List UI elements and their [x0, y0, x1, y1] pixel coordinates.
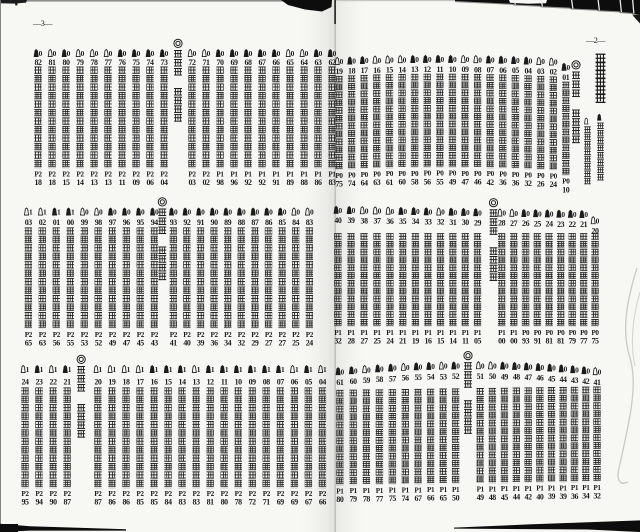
svg-text:0: 0 — [174, 208, 178, 217]
svg-text:02: 02 — [550, 68, 558, 77]
svg-text:13: 13 — [104, 178, 112, 187]
svg-text:1: 1 — [54, 365, 58, 374]
svg-text:14: 14 — [179, 378, 187, 387]
svg-text:0: 0 — [573, 210, 577, 219]
svg-text:47: 47 — [123, 339, 131, 348]
svg-text:50: 50 — [452, 493, 460, 502]
svg-text:00: 00 — [510, 336, 518, 345]
svg-text:1: 1 — [43, 208, 47, 217]
svg-text:08: 08 — [263, 378, 271, 387]
svg-text:72: 72 — [249, 498, 257, 507]
svg-text:87: 87 — [94, 498, 102, 507]
svg-text:39: 39 — [559, 492, 567, 501]
svg-text:0: 0 — [263, 49, 267, 58]
svg-text:0: 0 — [596, 216, 600, 225]
svg-text:36: 36 — [386, 217, 394, 226]
svg-text:87: 87 — [64, 498, 72, 507]
svg-text:74: 74 — [348, 179, 356, 188]
svg-text:23: 23 — [35, 378, 43, 387]
svg-text:52: 52 — [452, 372, 460, 381]
svg-text:26: 26 — [522, 219, 530, 228]
svg-text:40: 40 — [334, 216, 342, 225]
svg-text:09: 09 — [132, 178, 140, 187]
svg-text:28: 28 — [347, 336, 355, 345]
svg-text:66: 66 — [319, 498, 327, 507]
svg-text:48: 48 — [489, 493, 497, 502]
svg-text:27: 27 — [510, 219, 518, 228]
svg-text:48: 48 — [513, 373, 521, 382]
svg-text:0: 0 — [283, 208, 287, 217]
svg-text:0: 0 — [429, 207, 433, 216]
svg-text:1: 1 — [113, 365, 117, 374]
svg-text:47: 47 — [525, 373, 533, 382]
svg-text:77: 77 — [376, 494, 384, 503]
svg-text:0: 0 — [228, 208, 232, 217]
svg-text:24: 24 — [550, 180, 558, 189]
svg-text:94: 94 — [35, 498, 43, 507]
svg-text:71: 71 — [202, 58, 210, 67]
svg-text:0: 0 — [514, 209, 518, 218]
svg-text:33: 33 — [424, 217, 432, 226]
svg-text:01: 01 — [53, 218, 61, 227]
svg-text:57: 57 — [389, 374, 397, 383]
svg-text:0: 0 — [310, 208, 314, 217]
svg-text:0: 0 — [550, 210, 554, 219]
svg-text:42: 42 — [487, 178, 495, 187]
svg-text:1: 1 — [253, 365, 257, 374]
svg-text:49: 49 — [449, 177, 457, 186]
svg-text:22: 22 — [50, 378, 58, 387]
svg-text:0: 0 — [367, 365, 371, 374]
svg-text:0: 0 — [391, 207, 395, 216]
svg-text:0: 0 — [538, 209, 542, 218]
svg-text:0: 0 — [341, 367, 345, 376]
svg-text:37: 37 — [373, 217, 381, 226]
svg-text:02: 02 — [202, 178, 210, 187]
svg-text:11: 11 — [462, 336, 469, 345]
svg-text:14: 14 — [449, 336, 457, 345]
svg-text:83: 83 — [179, 498, 187, 507]
svg-text:44: 44 — [513, 493, 521, 502]
svg-text:95: 95 — [21, 498, 29, 507]
svg-text:0: 0 — [319, 49, 323, 58]
svg-text:29: 29 — [474, 218, 482, 227]
svg-text:0: 0 — [95, 49, 99, 58]
svg-text:0: 0 — [99, 208, 103, 217]
svg-text:0: 0 — [113, 208, 117, 217]
svg-text:67: 67 — [305, 498, 313, 507]
svg-text:47: 47 — [461, 178, 469, 187]
svg-text:55: 55 — [67, 339, 75, 348]
svg-text:0: 0 — [151, 49, 155, 58]
svg-text:39: 39 — [197, 339, 205, 348]
svg-text:55: 55 — [436, 177, 444, 186]
svg-text:0: 0 — [85, 208, 89, 217]
svg-text:46: 46 — [536, 374, 544, 383]
svg-text:0: 0 — [340, 57, 344, 66]
svg-text:84: 84 — [165, 498, 173, 507]
svg-text:83: 83 — [193, 498, 201, 507]
svg-text:85: 85 — [136, 498, 144, 507]
svg-text:27: 27 — [265, 339, 273, 348]
svg-text:0: 0 — [333, 49, 337, 58]
svg-text:0: 0 — [416, 207, 420, 216]
svg-text:26: 26 — [537, 180, 545, 189]
svg-text:34: 34 — [412, 217, 420, 226]
svg-text:86: 86 — [108, 498, 116, 507]
svg-text:89: 89 — [224, 218, 232, 227]
svg-text:—3—: —3— — [32, 19, 53, 28]
svg-text:61: 61 — [336, 378, 344, 387]
svg-text:0: 0 — [354, 366, 358, 375]
svg-text:02: 02 — [39, 218, 47, 227]
svg-text:0: 0 — [403, 55, 407, 64]
svg-text:00: 00 — [498, 336, 506, 345]
svg-text:80: 80 — [221, 498, 229, 507]
svg-text:18: 18 — [122, 378, 130, 387]
svg-text:0: 0 — [529, 362, 533, 371]
svg-text:80: 80 — [336, 495, 344, 504]
svg-text:36: 36 — [499, 178, 507, 187]
svg-text:86: 86 — [314, 178, 322, 187]
svg-text:0: 0 — [137, 49, 141, 58]
svg-text:18: 18 — [348, 67, 356, 76]
svg-text:0: 0 — [305, 49, 309, 58]
svg-text:92: 92 — [258, 178, 266, 187]
svg-text:13: 13 — [90, 178, 98, 187]
svg-text:59: 59 — [363, 376, 371, 385]
svg-text:34: 34 — [224, 339, 232, 348]
svg-text:0: 0 — [365, 206, 369, 215]
svg-text:0: 0 — [502, 209, 506, 218]
svg-text:60: 60 — [398, 178, 406, 187]
svg-text:39: 39 — [548, 492, 556, 501]
svg-text:83: 83 — [306, 218, 314, 227]
svg-text:0: 0 — [393, 364, 397, 373]
svg-text:18: 18 — [34, 178, 42, 187]
svg-text:75: 75 — [591, 336, 599, 345]
svg-text:56: 56 — [53, 339, 61, 348]
svg-text:0: 0 — [466, 208, 470, 217]
svg-text:49: 49 — [477, 493, 485, 502]
svg-text:0: 0 — [377, 56, 381, 65]
svg-text:60: 60 — [350, 377, 358, 386]
svg-text:0: 0 — [454, 208, 458, 217]
svg-text:98: 98 — [216, 178, 224, 187]
svg-text:0: 0 — [453, 55, 457, 64]
svg-text:0: 0 — [242, 208, 246, 217]
svg-text:00: 00 — [67, 218, 75, 227]
svg-text:25: 25 — [292, 339, 300, 348]
svg-text:30: 30 — [462, 218, 470, 227]
svg-text:40: 40 — [536, 492, 544, 501]
svg-text:19: 19 — [412, 336, 420, 345]
svg-text:81: 81 — [557, 336, 565, 345]
svg-text:67: 67 — [414, 494, 422, 503]
svg-text:0: 0 — [564, 364, 568, 373]
svg-text:23: 23 — [557, 220, 565, 229]
svg-text:17: 17 — [361, 66, 369, 75]
svg-text:0: 0 — [67, 49, 71, 58]
svg-text:24: 24 — [306, 339, 314, 348]
svg-text:07: 07 — [487, 66, 495, 75]
svg-text:79: 79 — [350, 495, 358, 504]
svg-text:67: 67 — [258, 58, 266, 67]
svg-text:93: 93 — [522, 336, 530, 345]
svg-text:21: 21 — [580, 220, 588, 229]
svg-text:24: 24 — [386, 336, 394, 345]
svg-text:69: 69 — [230, 58, 238, 67]
svg-text:0: 0 — [456, 362, 460, 371]
svg-text:77: 77 — [104, 58, 112, 67]
svg-text:0: 0 — [277, 49, 281, 58]
svg-text:58: 58 — [411, 178, 419, 187]
svg-text:17: 17 — [136, 378, 144, 387]
svg-text:25: 25 — [534, 219, 542, 228]
svg-text:03: 03 — [188, 178, 196, 187]
svg-text:15: 15 — [62, 178, 70, 187]
svg-text:0: 0 — [39, 49, 43, 58]
svg-text:0: 0 — [339, 206, 343, 215]
svg-text:42: 42 — [525, 492, 533, 501]
svg-text:0: 0 — [365, 56, 369, 65]
svg-text:92: 92 — [183, 218, 191, 227]
svg-text:0: 0 — [517, 362, 521, 371]
svg-text:0: 0 — [598, 367, 602, 376]
svg-text:0: 0 — [188, 208, 192, 217]
svg-text:0: 0 — [81, 49, 85, 58]
svg-text:16: 16 — [373, 66, 381, 75]
svg-text:58: 58 — [376, 375, 384, 384]
svg-text:95: 95 — [137, 218, 145, 227]
svg-text:45: 45 — [501, 493, 509, 502]
svg-text:0: 0 — [141, 208, 145, 217]
svg-text:10: 10 — [562, 185, 570, 194]
svg-text:62: 62 — [328, 58, 336, 67]
svg-text:27: 27 — [279, 339, 287, 348]
svg-text:18: 18 — [48, 178, 56, 187]
svg-text:46: 46 — [474, 178, 482, 187]
svg-text:19: 19 — [335, 67, 343, 76]
svg-text:05: 05 — [474, 336, 482, 345]
svg-text:32: 32 — [437, 218, 445, 227]
svg-text:0: 0 — [541, 57, 545, 66]
svg-text:90: 90 — [50, 498, 58, 507]
svg-text:0: 0 — [529, 57, 533, 66]
svg-text:1: 1 — [71, 208, 75, 217]
svg-text:41: 41 — [593, 378, 601, 387]
svg-text:29: 29 — [251, 339, 259, 348]
svg-text:0: 0 — [552, 364, 556, 373]
svg-text:36: 36 — [211, 339, 219, 348]
svg-text:1: 1 — [68, 365, 72, 374]
svg-text:14: 14 — [398, 65, 406, 74]
svg-text:64: 64 — [361, 179, 369, 188]
svg-text:1: 1 — [57, 208, 61, 217]
svg-text:66: 66 — [272, 58, 280, 67]
svg-text:61: 61 — [386, 178, 394, 187]
svg-text:0: 0 — [575, 365, 579, 374]
svg-text:1: 1 — [267, 365, 271, 374]
svg-text:0: 0 — [406, 363, 410, 372]
svg-text:04: 04 — [160, 178, 168, 187]
svg-text:0: 0 — [526, 209, 530, 218]
svg-text:52: 52 — [95, 339, 103, 348]
svg-text:98: 98 — [95, 218, 103, 227]
svg-text:0: 0 — [441, 208, 445, 217]
svg-text:53: 53 — [440, 372, 448, 381]
svg-text:78: 78 — [235, 498, 243, 507]
svg-text:79: 79 — [76, 58, 84, 67]
svg-text:0: 0 — [403, 207, 407, 216]
svg-text:0: 0 — [390, 56, 394, 65]
svg-text:15: 15 — [165, 378, 173, 387]
svg-text:49: 49 — [501, 372, 509, 381]
svg-text:0: 0 — [478, 208, 482, 217]
svg-text:89: 89 — [286, 178, 294, 187]
svg-text:10: 10 — [449, 65, 457, 74]
svg-text:88: 88 — [300, 178, 308, 187]
svg-text:56: 56 — [402, 374, 410, 383]
svg-text:0: 0 — [415, 55, 419, 64]
svg-text:05: 05 — [512, 66, 520, 75]
svg-text:88: 88 — [238, 218, 246, 227]
svg-text:71: 71 — [263, 498, 271, 507]
svg-text:0: 0 — [127, 208, 131, 217]
svg-text:0: 0 — [291, 49, 295, 58]
svg-text:0: 0 — [201, 208, 205, 217]
svg-text:05: 05 — [305, 378, 313, 387]
svg-text:0: 0 — [466, 55, 470, 64]
svg-text:75: 75 — [335, 180, 343, 189]
svg-text:0: 0 — [431, 362, 435, 371]
svg-text:07: 07 — [277, 378, 285, 387]
svg-text:65: 65 — [440, 494, 448, 503]
svg-text:1: 1 — [211, 365, 215, 374]
svg-text:82: 82 — [34, 58, 42, 67]
svg-text:54: 54 — [427, 373, 435, 382]
svg-text:43: 43 — [151, 339, 159, 348]
svg-text:56: 56 — [424, 177, 432, 186]
svg-text:1: 1 — [40, 365, 44, 374]
svg-text:1: 1 — [225, 365, 229, 374]
svg-text:77: 77 — [580, 336, 588, 345]
svg-text:—2—: —2— — [585, 36, 606, 45]
svg-text:01: 01 — [562, 73, 570, 82]
svg-text:16: 16 — [424, 336, 432, 345]
svg-text:97: 97 — [109, 218, 117, 227]
svg-text:81: 81 — [546, 336, 554, 345]
svg-text:03: 03 — [25, 218, 33, 227]
svg-text:0: 0 — [440, 55, 444, 64]
svg-text:69: 69 — [291, 498, 299, 507]
svg-text:75: 75 — [132, 58, 140, 67]
svg-text:1: 1 — [29, 208, 33, 217]
svg-text:96: 96 — [123, 218, 131, 227]
svg-text:36: 36 — [571, 492, 579, 501]
svg-text:65: 65 — [286, 58, 294, 67]
svg-text:1: 1 — [155, 365, 159, 374]
svg-text:03: 03 — [537, 67, 545, 76]
svg-text:90: 90 — [211, 218, 219, 227]
svg-text:91: 91 — [272, 178, 280, 187]
svg-text:70: 70 — [216, 58, 224, 67]
svg-text:94: 94 — [151, 218, 159, 227]
svg-text:1: 1 — [239, 365, 243, 374]
svg-text:85: 85 — [150, 498, 158, 507]
svg-text:39: 39 — [347, 216, 355, 225]
svg-text:0: 0 — [256, 208, 260, 217]
svg-text:53: 53 — [81, 339, 89, 348]
svg-text:13: 13 — [193, 378, 201, 387]
svg-text:75: 75 — [389, 494, 397, 503]
svg-text:43: 43 — [571, 376, 579, 385]
svg-text:79: 79 — [569, 336, 577, 345]
svg-text:0: 0 — [505, 362, 509, 371]
svg-text:49: 49 — [109, 339, 117, 348]
svg-text:32: 32 — [524, 179, 532, 188]
svg-text:0: 0 — [566, 63, 570, 72]
svg-text:38: 38 — [361, 216, 369, 225]
svg-text:0: 0 — [554, 58, 558, 67]
svg-text:1: 1 — [295, 365, 299, 374]
svg-text:06: 06 — [291, 378, 299, 387]
svg-text:78: 78 — [90, 58, 98, 67]
svg-text:66: 66 — [427, 494, 435, 503]
svg-text:99: 99 — [81, 218, 89, 227]
svg-text:42: 42 — [582, 377, 590, 386]
svg-text:20: 20 — [94, 378, 102, 387]
svg-text:68: 68 — [244, 58, 252, 67]
svg-text:0: 0 — [478, 55, 482, 64]
svg-text:74: 74 — [402, 494, 410, 503]
svg-text:1: 1 — [99, 365, 103, 374]
svg-text:74: 74 — [146, 58, 154, 67]
svg-text:24: 24 — [546, 220, 554, 229]
svg-text:0: 0 — [493, 362, 497, 371]
svg-text:93: 93 — [170, 218, 178, 227]
svg-text:09: 09 — [249, 378, 257, 387]
svg-text:24: 24 — [21, 378, 29, 387]
svg-text:0: 0 — [352, 57, 356, 66]
svg-text:91: 91 — [534, 336, 542, 345]
svg-text:14: 14 — [76, 178, 84, 187]
svg-text:06: 06 — [146, 178, 154, 187]
svg-text:45: 45 — [137, 339, 145, 348]
svg-text:35: 35 — [399, 217, 407, 226]
svg-text:44: 44 — [559, 375, 567, 384]
svg-text:0: 0 — [123, 49, 127, 58]
svg-text:1: 1 — [281, 365, 285, 374]
svg-text:86: 86 — [265, 218, 273, 227]
svg-text:1: 1 — [127, 365, 131, 374]
svg-text:0: 0 — [419, 362, 423, 371]
svg-text:0: 0 — [428, 55, 432, 64]
svg-text:80: 80 — [62, 58, 70, 67]
svg-text:0: 0 — [586, 366, 590, 375]
svg-text:19: 19 — [108, 378, 116, 387]
svg-text:1: 1 — [26, 365, 30, 374]
svg-text:0: 0 — [296, 208, 300, 217]
svg-text:0: 0 — [541, 363, 545, 372]
svg-text:08: 08 — [474, 65, 482, 74]
svg-text:0: 0 — [269, 208, 273, 217]
svg-text:32: 32 — [238, 339, 246, 348]
svg-text:63: 63 — [39, 339, 47, 348]
svg-text:1: 1 — [197, 365, 201, 374]
svg-text:1: 1 — [141, 365, 145, 374]
svg-text:91: 91 — [197, 218, 205, 227]
